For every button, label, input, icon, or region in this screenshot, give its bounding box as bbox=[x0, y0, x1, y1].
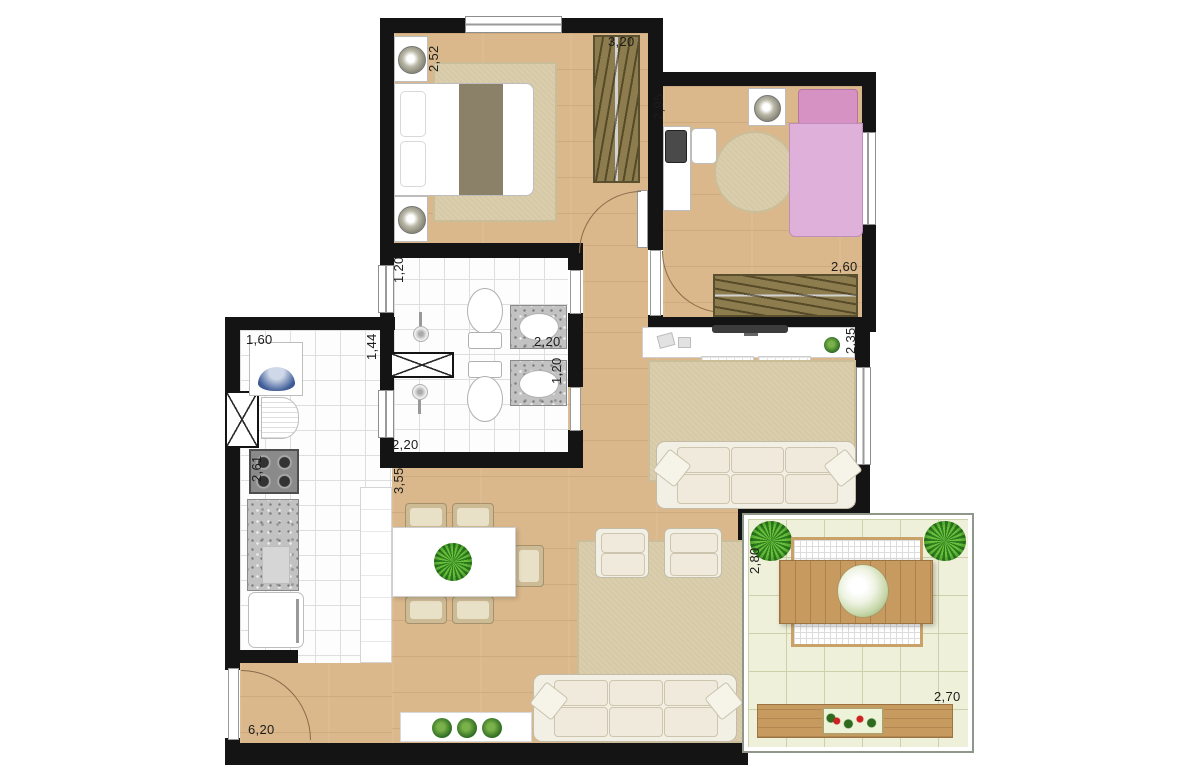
sofa-seat-cushion bbox=[609, 707, 663, 737]
dim-bath1-width: 2,20 bbox=[534, 334, 561, 349]
dim-bedroom1-width: 3,20 bbox=[608, 34, 635, 49]
toilet-bowl bbox=[467, 376, 503, 422]
wall bbox=[568, 313, 583, 387]
sofa-seat-cushion bbox=[785, 474, 838, 504]
living-room-window bbox=[856, 367, 871, 465]
tv bbox=[712, 325, 788, 333]
pillow-pink bbox=[798, 89, 858, 125]
sofa-back-cushion bbox=[731, 447, 784, 473]
armchair bbox=[664, 528, 722, 578]
bedroom-1-window bbox=[465, 16, 562, 33]
pillow bbox=[400, 141, 426, 187]
armchair-seat bbox=[601, 553, 645, 576]
table-lamp bbox=[398, 46, 426, 74]
bed-runner bbox=[459, 84, 503, 195]
bedroom-2-round-rug bbox=[714, 131, 796, 213]
dining-chair bbox=[405, 596, 447, 624]
armchair bbox=[595, 528, 649, 578]
dim-bath2-width: 2,20 bbox=[392, 437, 419, 452]
armchair-back bbox=[601, 533, 645, 553]
laundry-tub bbox=[261, 397, 299, 439]
floor-plan: 2,52 3,20 2,95 2,60 1,20 2,20 1,20 2,20 … bbox=[0, 0, 1200, 776]
wall bbox=[862, 72, 876, 134]
kitchen-counter-granite bbox=[247, 499, 299, 591]
bathroom-2-window bbox=[378, 390, 394, 438]
desk-chair bbox=[691, 128, 717, 164]
wall bbox=[380, 452, 583, 468]
wardrobe bbox=[713, 274, 858, 317]
dining-chair bbox=[514, 545, 544, 587]
decor-object bbox=[678, 337, 691, 348]
sofa-seat-cushion bbox=[664, 707, 718, 737]
hallway-floor bbox=[583, 245, 648, 335]
wall bbox=[225, 446, 240, 670]
sideboard-plant bbox=[432, 718, 452, 738]
kitchen-peninsula-counter bbox=[360, 487, 392, 663]
dim-bedroom2-width: 2,60 bbox=[831, 259, 858, 274]
tv-stand bbox=[744, 333, 758, 336]
double-bed bbox=[394, 83, 534, 196]
armchair-seat bbox=[670, 553, 718, 576]
toilet-bowl bbox=[467, 288, 503, 334]
shower-head bbox=[412, 384, 428, 400]
shower-stem bbox=[418, 398, 421, 414]
dim-balcony-depth: 2,80 bbox=[747, 538, 762, 574]
shower-head bbox=[413, 326, 429, 342]
sideboard-plant bbox=[482, 718, 502, 738]
sofa-back-cushion bbox=[609, 680, 663, 706]
dining-chair bbox=[452, 596, 494, 624]
wall bbox=[225, 317, 240, 393]
wall bbox=[862, 224, 876, 332]
wall bbox=[240, 650, 298, 663]
dim-balcony-width: 2,70 bbox=[934, 689, 961, 704]
single-bed-pink bbox=[789, 123, 863, 237]
kitchen-sink bbox=[262, 546, 290, 584]
sofa-seat-cushion bbox=[677, 474, 730, 504]
fridge-handle bbox=[296, 599, 299, 643]
dim-bath2-sink: 1,20 bbox=[549, 352, 564, 384]
dim-hall-length: 3,55 bbox=[391, 458, 406, 494]
bathroom-2-door bbox=[570, 387, 581, 431]
sofa-seat-cushion bbox=[731, 474, 784, 504]
sideboard-plant bbox=[457, 718, 477, 738]
wall bbox=[380, 243, 578, 258]
dim-bedroom2-depth: 2,95 bbox=[651, 86, 666, 120]
table-lamp bbox=[754, 95, 781, 122]
duct-shaft-symbol bbox=[225, 391, 259, 448]
bathroom-1-door bbox=[570, 270, 581, 314]
duct-shaft-symbol bbox=[390, 352, 454, 378]
dim-service-width: 1,44 bbox=[364, 328, 379, 360]
table-lamp bbox=[398, 206, 426, 234]
dim-living-width: 2,35 bbox=[843, 326, 858, 354]
sofa-3-seat-lower bbox=[533, 674, 737, 742]
console-plant bbox=[824, 337, 840, 353]
dim-laundry-width: 1,60 bbox=[246, 332, 273, 347]
entry-door bbox=[228, 668, 239, 740]
sofa-3-seat bbox=[656, 441, 856, 509]
refrigerator bbox=[248, 592, 304, 648]
wall bbox=[225, 743, 748, 765]
wall bbox=[380, 18, 394, 267]
table-plant bbox=[434, 543, 472, 581]
dim-bedroom1-depth: 2,52 bbox=[426, 32, 441, 72]
bedroom-2-door bbox=[650, 250, 661, 316]
dim-living-length: 6,20 bbox=[248, 722, 275, 737]
toilet-tank bbox=[468, 332, 502, 349]
computer-monitor bbox=[665, 130, 687, 163]
wall bbox=[648, 72, 876, 86]
balcony-plant bbox=[924, 521, 966, 561]
dim-kitchen-length: 2,61 bbox=[249, 450, 264, 482]
flower-box bbox=[822, 707, 884, 735]
washing-machine bbox=[249, 342, 303, 396]
wardrobe bbox=[593, 35, 640, 183]
table-flower-arrangement bbox=[838, 565, 888, 617]
armchair-back bbox=[670, 533, 718, 553]
sofa-seat-cushion bbox=[554, 707, 608, 737]
washer-drum bbox=[258, 367, 295, 391]
pillow bbox=[400, 91, 426, 137]
dim-bath1-door: 1,20 bbox=[391, 253, 406, 283]
